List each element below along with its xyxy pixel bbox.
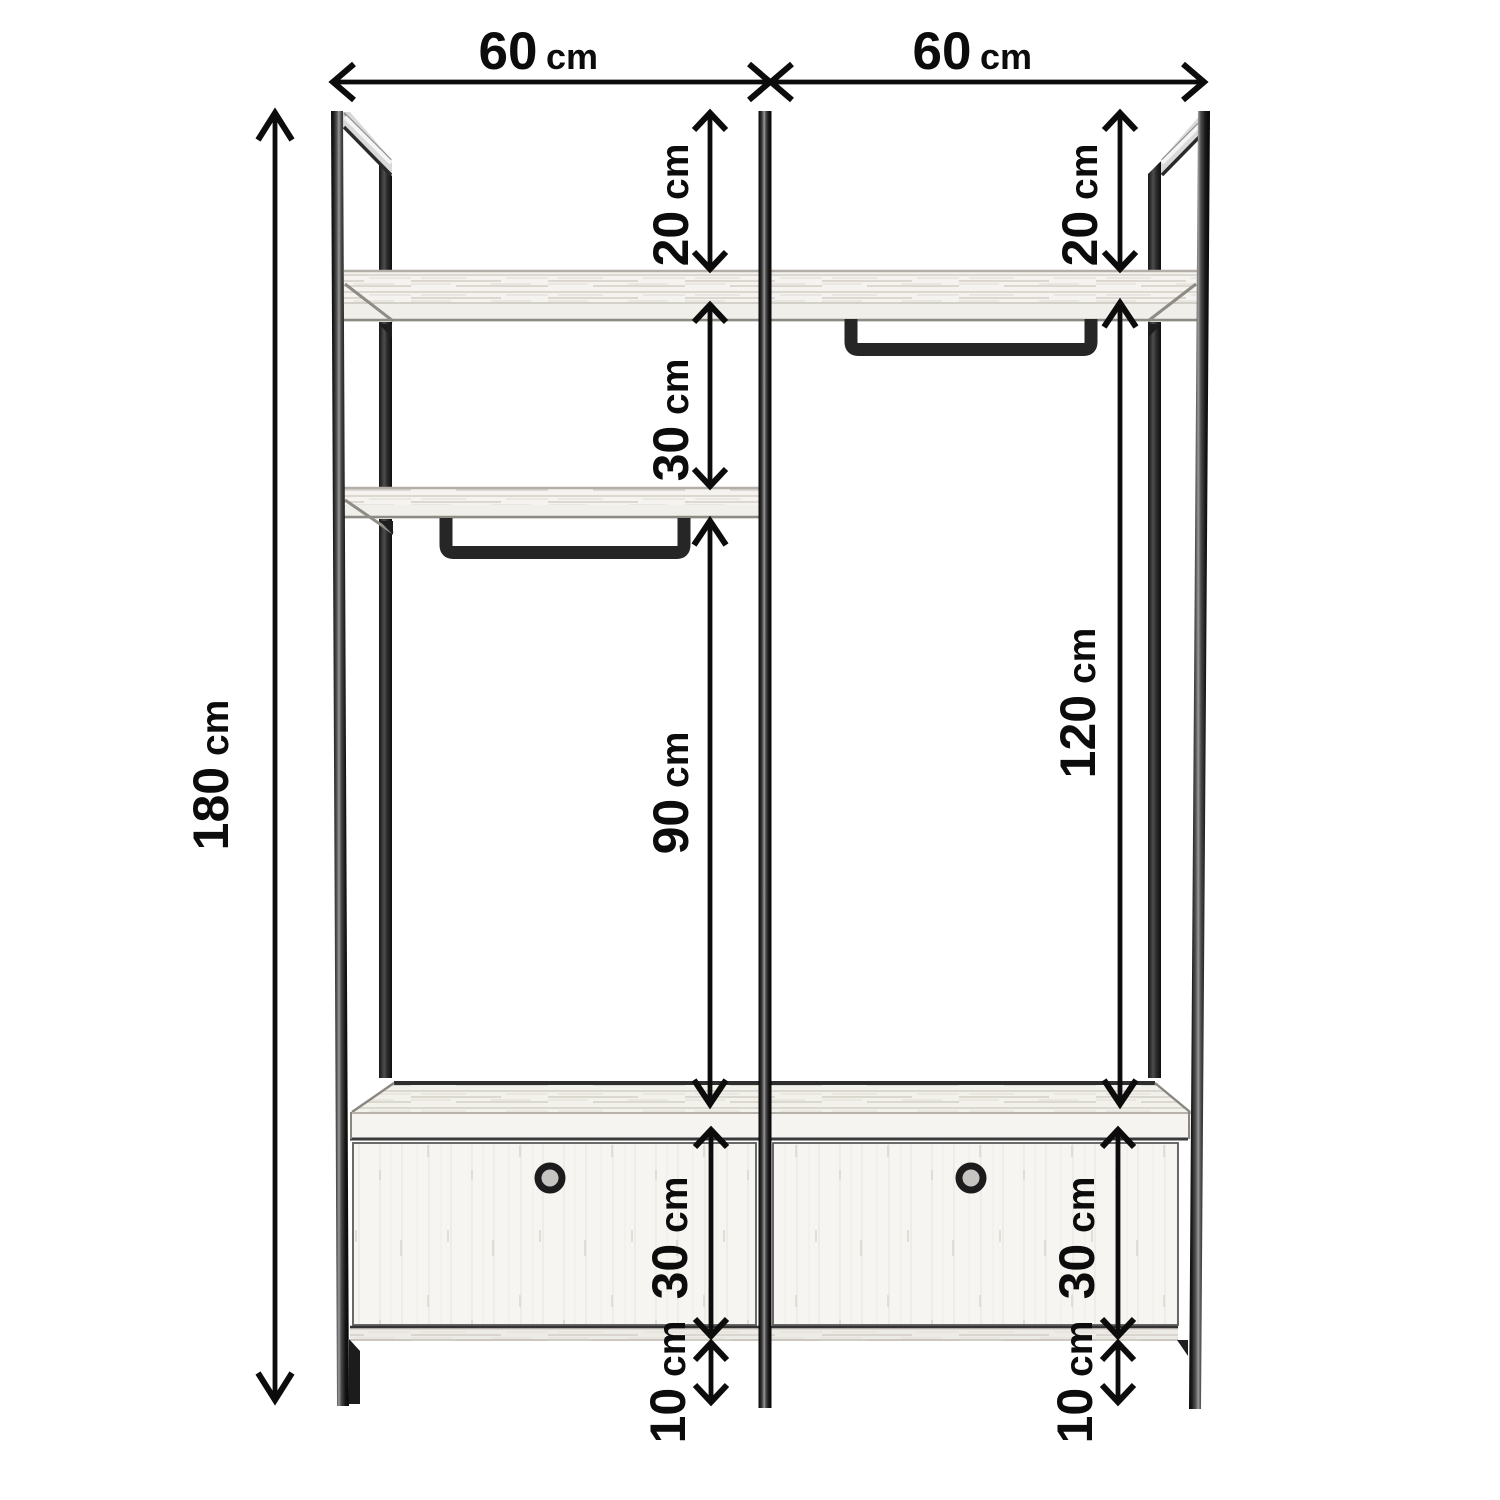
svg-text:cm: cm	[546, 36, 598, 77]
svg-text:60: 60	[913, 22, 972, 81]
svg-text:cm: cm	[980, 36, 1032, 77]
svg-text:60: 60	[479, 22, 538, 81]
